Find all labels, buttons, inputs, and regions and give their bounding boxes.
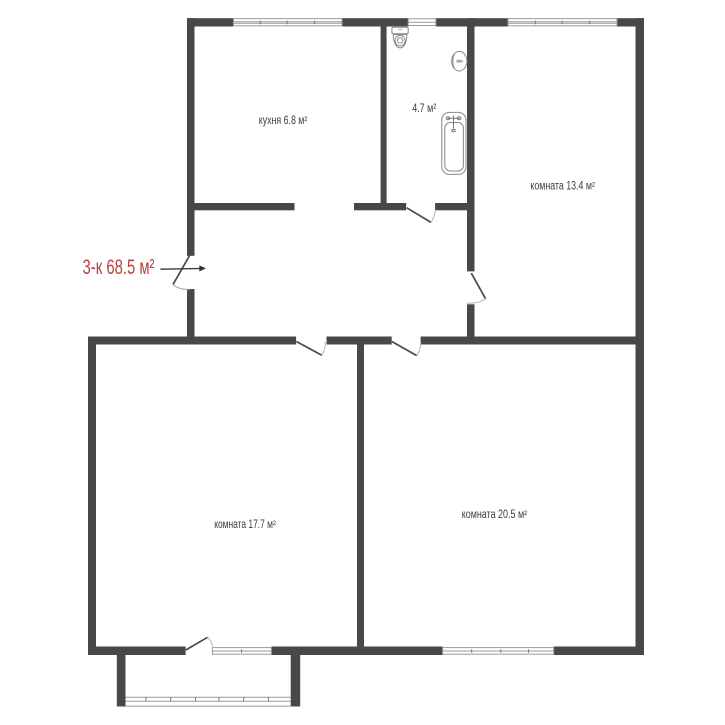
svg-text:комната 13.4 м²: комната 13.4 м² <box>530 181 595 193</box>
svg-text:кухня 6.8 м²: кухня 6.8 м² <box>259 115 308 127</box>
svg-text:4.7 м²: 4.7 м² <box>412 101 436 115</box>
svg-text:3-к 68.5 м²: 3-к 68.5 м² <box>83 256 155 279</box>
svg-text:комната 17.7 м²: комната 17.7 м² <box>214 519 276 531</box>
svg-text:комната 20.5 м²: комната 20.5 м² <box>462 509 528 521</box>
